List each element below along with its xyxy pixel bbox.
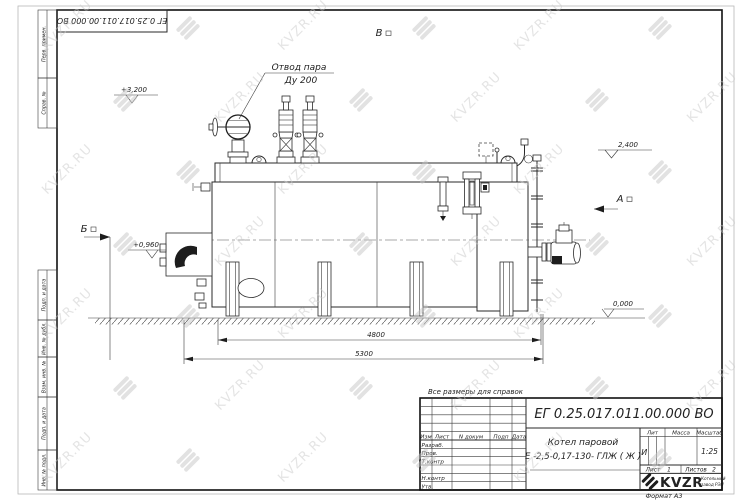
drum-dome	[252, 156, 266, 163]
watermark-text: KVZR.RU	[684, 213, 740, 269]
dim-text: 5300	[355, 350, 373, 358]
title-block: ЕГ 0.25.017.011.00.000 ВО Котел паровой …	[420, 398, 726, 500]
watermark-text: KVZR.RU	[511, 0, 567, 54]
burner	[160, 233, 212, 276]
safety-valve-1	[273, 96, 299, 163]
watermark-glyph	[176, 448, 201, 473]
margin-label: Взам. инв. №	[42, 361, 48, 394]
view-arrow-b: Б	[81, 224, 110, 241]
kvzr-logo-text: KVZR	[660, 475, 703, 491]
watermark-glyph	[176, 304, 201, 329]
tb-listov-value: 2	[712, 468, 716, 474]
ground	[88, 318, 645, 325]
watermark-text: KVZR.RU	[39, 429, 95, 485]
margin-label: Подп. и дата	[42, 279, 48, 312]
tb-col-podp: Подп	[493, 435, 508, 441]
margin-stamp-podp1: Подп. и дата	[38, 270, 57, 320]
watermark-text: KVZR.RU	[684, 357, 740, 413]
margin-label: Подп. и дата	[42, 407, 48, 440]
manhole	[238, 279, 264, 298]
watermark-text: KVZR.RU	[39, 285, 95, 341]
elev-0000: 0,000	[602, 300, 644, 317]
view-label: А	[616, 194, 624, 205]
margin-stamp-podp2: Подп. и дата	[38, 397, 57, 450]
elev-2400: 2,400	[598, 141, 652, 158]
dim-4800: 4800	[218, 331, 541, 342]
watermark-glyph	[349, 376, 374, 401]
callout-line2: Ду 200	[284, 76, 318, 86]
watermark-text: KVZR.RU	[448, 69, 504, 125]
steam-valve	[209, 115, 250, 163]
callout-line1: Отвод пара	[272, 63, 327, 73]
watermark-text: KVZR.RU	[212, 357, 268, 413]
pump-unit	[528, 222, 581, 264]
tb-row-nkontr: Н.контр	[422, 476, 446, 482]
kvzr-logo: KVZR Котельный завод РЭП	[641, 473, 726, 491]
view-label: В	[376, 28, 383, 39]
tb-col-izm: Изм	[420, 435, 432, 441]
elev-text: 2,400	[618, 141, 639, 149]
watermark-text: KVZR.RU	[39, 0, 95, 54]
tb-col-data: Дата	[511, 435, 527, 441]
tb-lit-value: И	[641, 448, 647, 457]
watermark-glyph	[585, 232, 610, 257]
dim-5300: 5300	[184, 350, 543, 361]
tb-col-ndokum: N докум	[459, 435, 484, 441]
watermark-glyph	[648, 160, 673, 185]
tb-row-utv: Утв.	[422, 484, 434, 490]
margin-stamp-vzam: Взам. инв. №	[38, 357, 57, 397]
watermark-text: KVZR.RU	[275, 0, 331, 54]
tb-lit-header: Лит	[646, 431, 659, 437]
format-label: Формат А3	[645, 492, 682, 500]
body-top-fitting	[481, 183, 489, 192]
elev-text: +0,960	[133, 241, 159, 249]
watermark-text: KVZR.RU	[684, 69, 740, 125]
drawing-sheet: Перв. примен. Справ. № Подп. и дата Инв.…	[0, 0, 750, 500]
margin-stamp-sprav: Справ. №	[38, 78, 57, 128]
watermark-glyph	[585, 376, 610, 401]
tb-massa-header: Масса	[672, 431, 690, 437]
tb-row-razrab: Разраб.	[422, 443, 444, 449]
boiler-side-view	[160, 96, 590, 316]
view-arrow-a: А	[594, 194, 632, 213]
watermark-glyph	[176, 16, 201, 41]
margin-stamps: Перв. примен. Справ. № Подп. и дата Инв.…	[38, 10, 57, 490]
watermark-text: KVZR.RU	[39, 141, 95, 197]
tb-masshtab-header: Масштаб	[696, 431, 723, 437]
top-left-valve	[193, 183, 210, 191]
watermark-glyph	[412, 16, 437, 41]
tb-col-list: Лист	[434, 435, 450, 441]
watermark-glyph	[585, 88, 610, 113]
view-arrow-v: В	[376, 28, 391, 39]
watermark-glyph	[176, 160, 201, 185]
watermark-text: KVZR.RU	[511, 141, 567, 197]
kvzr-logo-sub1: Котельный	[701, 476, 726, 481]
tb-listov-label: Листов	[684, 468, 707, 474]
view-label: Б	[81, 224, 88, 235]
tb-doc-number: ЕГ 0.25.017.011.00.000 ВО	[534, 407, 713, 422]
tb-scale-value: 1:25	[701, 447, 718, 456]
watermark-glyph	[648, 304, 673, 329]
drum-rear-fittings	[479, 139, 533, 166]
tb-list-value: 1	[667, 468, 671, 474]
front-fittings	[195, 279, 206, 308]
watermark-glyph	[113, 232, 138, 257]
watermark-glyph	[648, 16, 673, 41]
watermark-text: KVZR.RU	[448, 357, 504, 413]
dim-text: 4800	[367, 331, 385, 339]
elev-text: 0,000	[613, 300, 634, 308]
kvzr-logo-sub2: завод РЭП	[701, 482, 724, 487]
watermark-text: KVZR.RU	[275, 429, 331, 485]
kvzr-logo-icon	[641, 473, 659, 491]
watermark-glyph	[349, 88, 374, 113]
margin-label: Справ. №	[42, 91, 48, 114]
watermark-glyph	[113, 376, 138, 401]
